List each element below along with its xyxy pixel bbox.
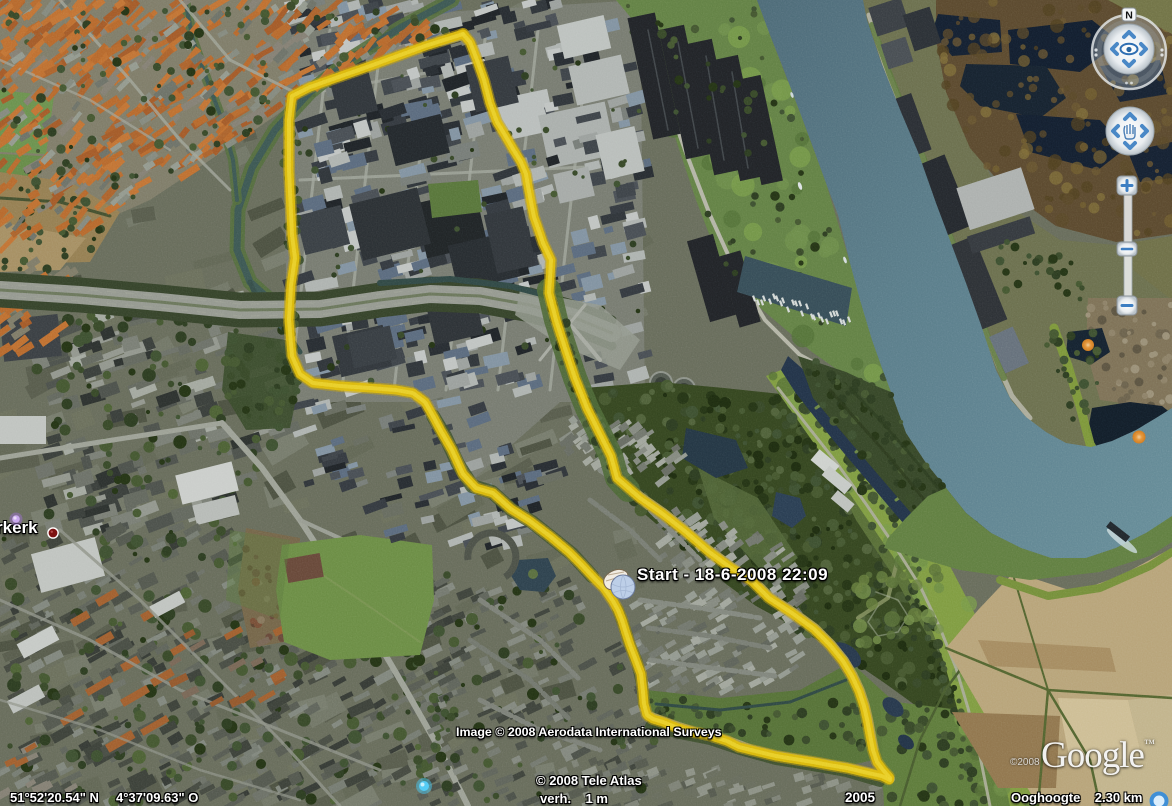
svg-text:N: N [1125, 10, 1133, 22]
